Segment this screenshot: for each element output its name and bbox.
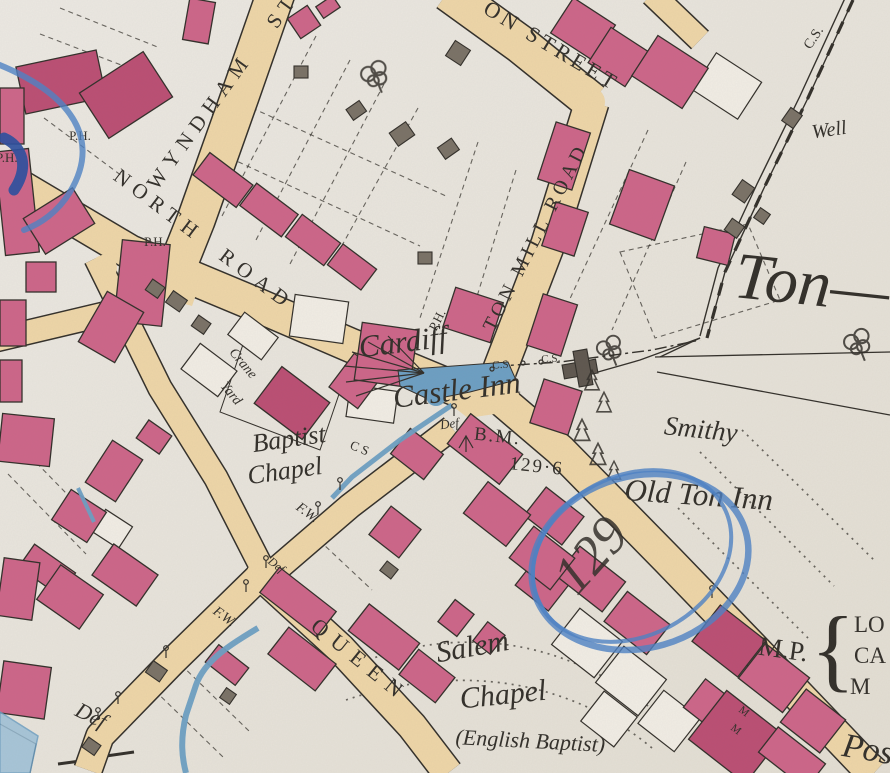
survey-map: WYNDHAM ST ON STREET TON MILL ROAD NORTH… bbox=[0, 0, 890, 773]
map-canvas[interactable]: WYNDHAM ST ON STREET TON MILL ROAD NORTH… bbox=[0, 0, 890, 773]
paper-grain bbox=[0, 0, 890, 773]
